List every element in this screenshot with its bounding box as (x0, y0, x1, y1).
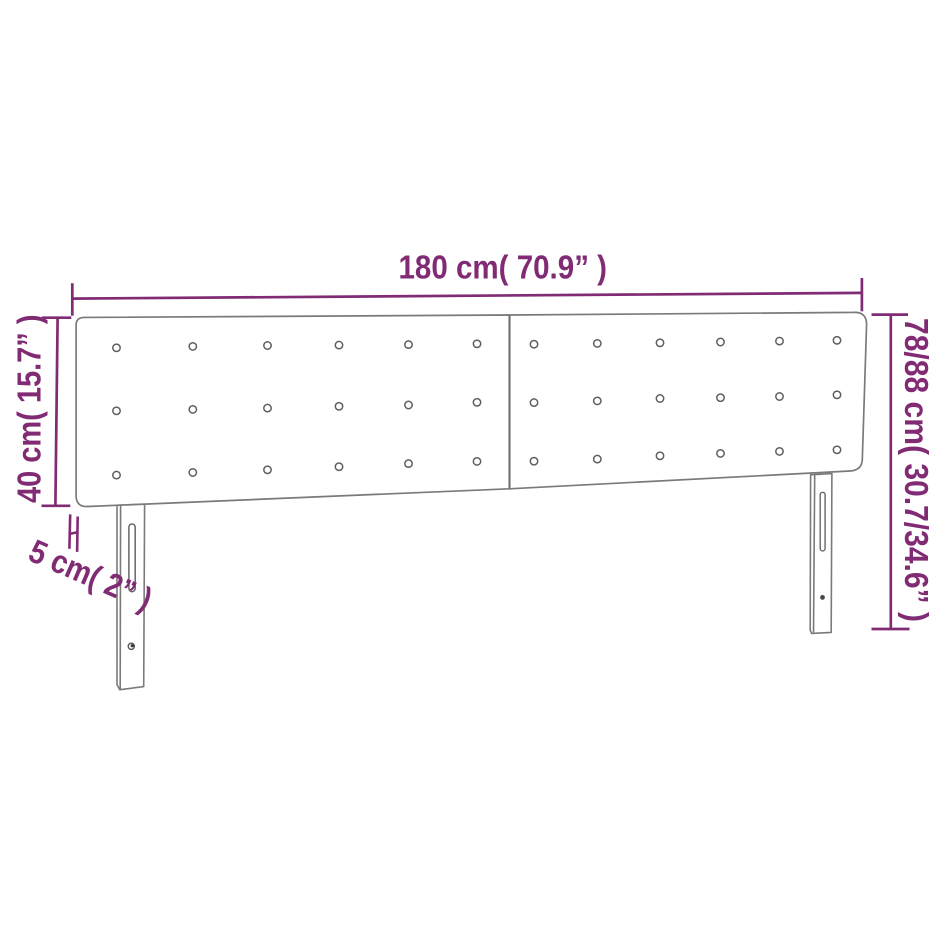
svg-text:78/88 cm( 30.7/34.6” ): 78/88 cm( 30.7/34.6” ) (898, 318, 935, 622)
svg-text:180 cm( 70.9” ): 180 cm( 70.9” ) (399, 249, 608, 286)
svg-text:40 cm( 15.7” ): 40 cm( 15.7” ) (11, 315, 48, 504)
